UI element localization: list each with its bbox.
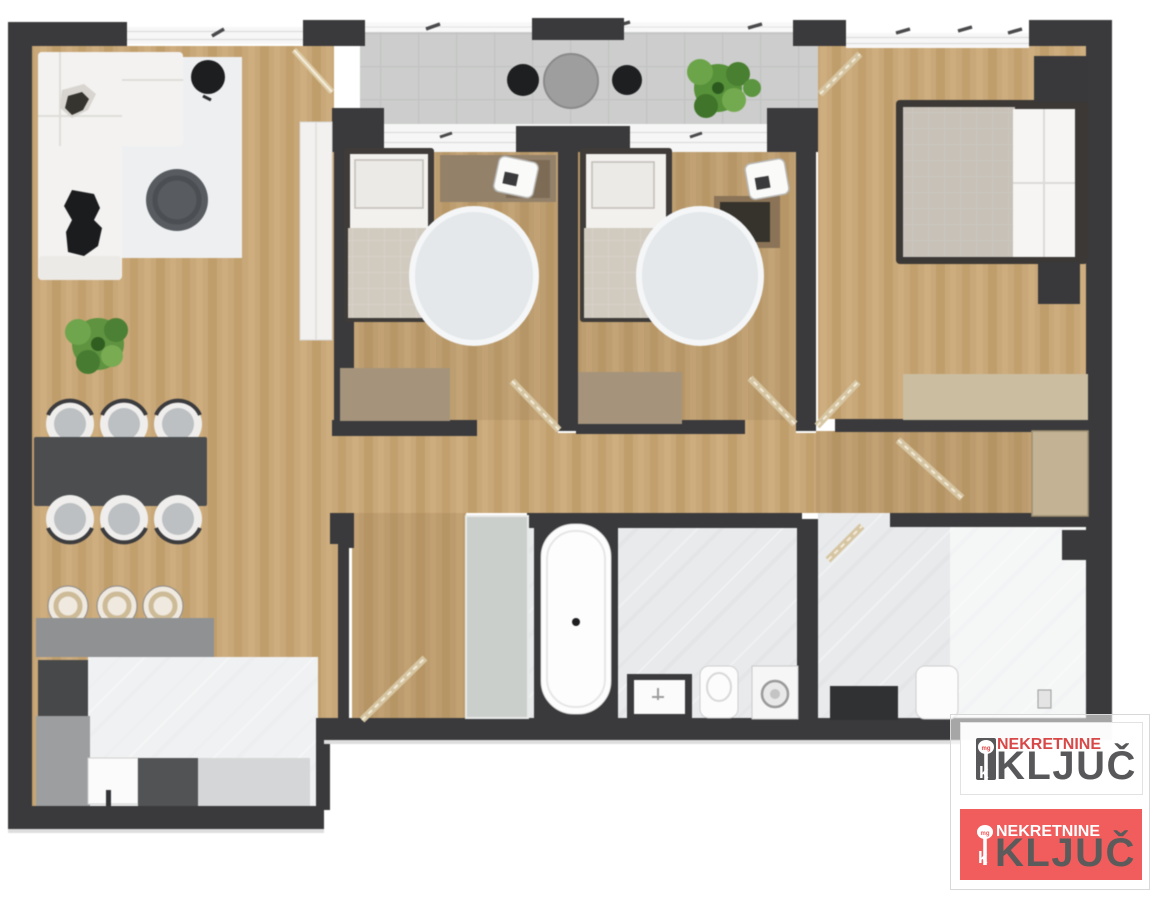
svg-text:k: k: [978, 848, 988, 867]
svg-text:mg: mg: [981, 831, 990, 837]
svg-text:mg: mg: [982, 746, 991, 752]
svg-text:k: k: [979, 763, 989, 782]
